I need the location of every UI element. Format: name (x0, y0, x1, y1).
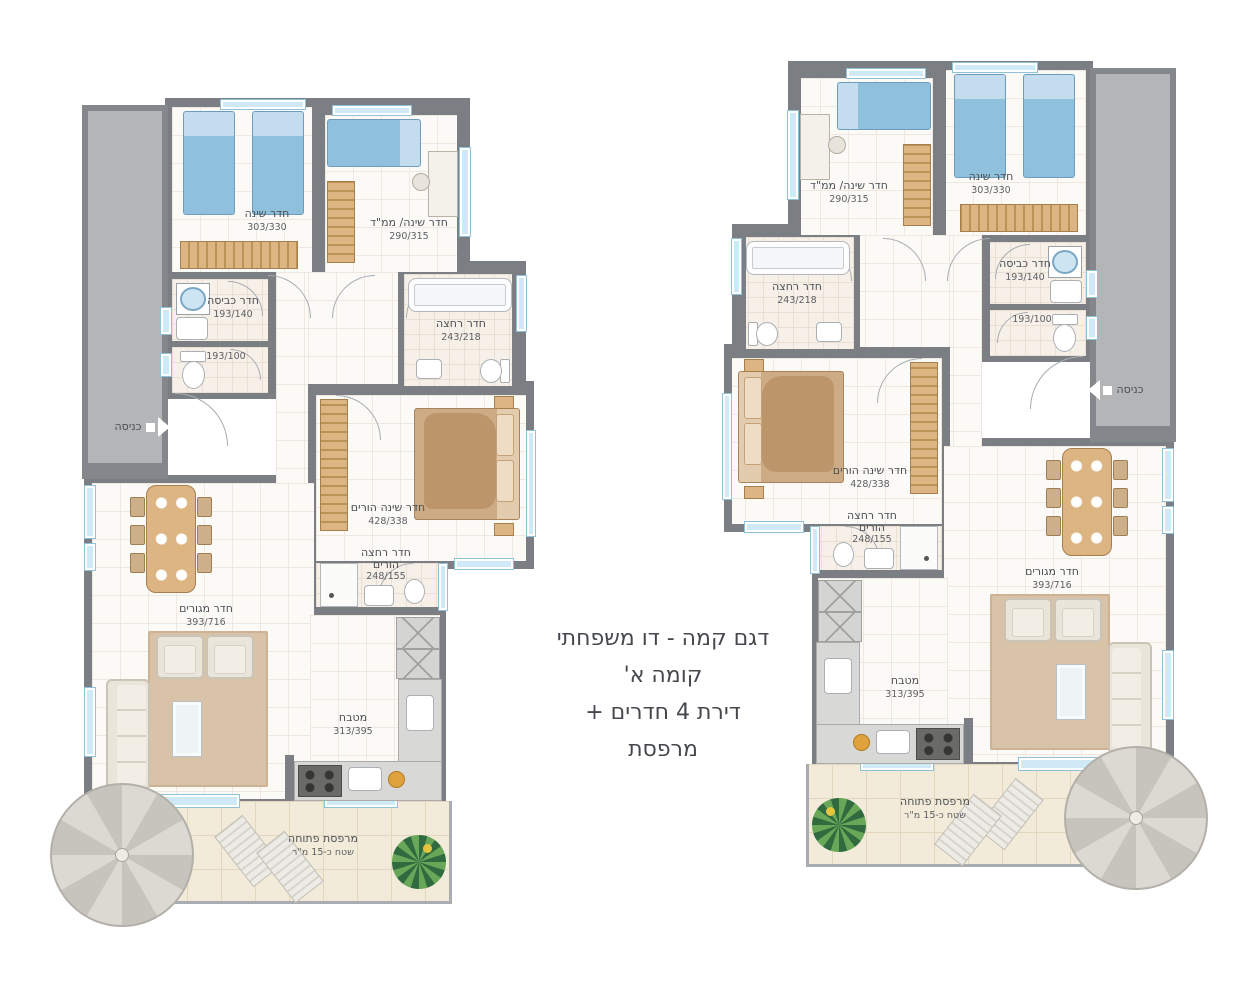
room-parents-bedroom-label: חדר שינה הורים 428/338 (833, 464, 907, 492)
arrow-head (1088, 380, 1100, 400)
single-bed (1023, 74, 1075, 178)
dining-chair (130, 553, 145, 573)
window (810, 526, 820, 574)
single-bed (252, 111, 304, 215)
room-dims: 393/716 (179, 616, 233, 630)
room-dims: 313/395 (885, 688, 924, 702)
stove (916, 728, 960, 760)
room-bedroom-label: חדר שינה 303/330 (969, 170, 1014, 198)
nightstand (494, 523, 514, 536)
room-parents-bathroom-label: חדר רחצה הורים 248/155 (361, 547, 411, 583)
room-name: חדר מגורים (179, 602, 233, 616)
window (731, 238, 742, 295)
wardrobe (910, 362, 938, 494)
room-name: מרפסת פתוחה (900, 795, 970, 809)
nightstand (744, 486, 764, 499)
dryer (176, 317, 208, 340)
single-bed (837, 82, 931, 130)
room-toilet-label: 193/100 (206, 350, 245, 364)
dining-chair (1046, 488, 1061, 508)
pillow (744, 423, 762, 465)
room-dims: 428/338 (833, 478, 907, 492)
armchair (1054, 598, 1102, 642)
common-corridor (1096, 74, 1170, 426)
fruit-bowl (853, 734, 870, 751)
room-dims: 313/395 (333, 725, 372, 739)
window (744, 521, 804, 533)
dining-chair (1113, 460, 1128, 480)
entrance-name: כניסה (1116, 383, 1143, 397)
single-bed (327, 119, 421, 167)
entrance-name: כניסה (114, 420, 141, 434)
sink (864, 548, 894, 569)
wardrobe (180, 241, 298, 269)
kitchen-sink (824, 658, 852, 694)
plant (392, 835, 446, 889)
room-name: חדר שינה (969, 170, 1014, 184)
door-arc (175, 393, 228, 446)
bathtub (408, 278, 512, 312)
room-dims: 193/140 (999, 271, 1051, 285)
kitchen-cabinet (818, 612, 862, 642)
room-name: הורים (847, 522, 897, 534)
door-arc (1030, 356, 1083, 409)
kitchen-sink (348, 767, 382, 791)
washing-machine (176, 283, 210, 315)
desk-chair (828, 136, 846, 154)
dining-chair (130, 525, 145, 545)
bathtub (746, 241, 850, 275)
wardrobe (327, 181, 355, 263)
window (332, 105, 412, 116)
window (1086, 316, 1098, 340)
pillow (496, 460, 514, 502)
room-name: מרפסת פתוחה (288, 832, 358, 846)
coffee-table (1056, 664, 1086, 720)
umbrella (1064, 746, 1208, 890)
room-dims: 393/716 (1025, 579, 1079, 593)
armchair (206, 635, 254, 679)
wardrobe (903, 144, 931, 226)
room-kitchen-label: מטבח 313/395 (885, 674, 924, 702)
window (454, 558, 514, 570)
arrow-head (158, 417, 170, 437)
room-name: חדר שינה/ ממ"ד (810, 179, 888, 193)
sink (416, 359, 442, 379)
wardrobe (320, 399, 348, 531)
window (787, 110, 799, 200)
common-corridor (88, 111, 162, 463)
pillow (744, 377, 762, 419)
window (1162, 448, 1174, 502)
room-dims: 303/330 (245, 221, 290, 235)
room-dims: 243/218 (772, 294, 822, 308)
single-bed (954, 74, 1006, 178)
room-name: חדר שינה הורים (833, 464, 907, 478)
plant (812, 798, 866, 852)
floor-plan-right: חדר שינה 303/330 חדר שינה/ ממ"ד 290/315 … (720, 58, 1178, 870)
room-dims: 193/140 (207, 308, 259, 322)
room-kitchen-label: מטבח 313/395 (333, 711, 372, 739)
shower (320, 563, 358, 607)
window (1086, 270, 1098, 298)
wall-stub (964, 718, 973, 762)
window (722, 393, 732, 500)
balcony-label: מרפסת פתוחה שטח כ-15 מ"ר (900, 795, 970, 823)
window (516, 275, 527, 332)
room-dims: 248/155 (847, 534, 897, 546)
entrance-arrow-icon (146, 417, 170, 437)
armchair (156, 635, 204, 679)
window (526, 430, 536, 537)
room-dims: 193/100 (206, 350, 245, 364)
room-dims: 193/100 (1012, 313, 1051, 327)
room-bedroom-label: חדר שינה 303/330 (245, 207, 290, 235)
window (459, 147, 471, 237)
pillow (496, 414, 514, 456)
stove (298, 765, 342, 797)
toilet-bowl (480, 359, 502, 383)
wall-stub (285, 755, 294, 799)
balcony-label: מרפסת פתוחה שטח כ-15 מ"ר (288, 832, 358, 860)
kitchen-sink (876, 730, 910, 754)
dining-chair (197, 553, 212, 573)
room-dims: 428/338 (351, 515, 425, 529)
room-name: מטבח (333, 711, 372, 725)
dining-chair (1113, 488, 1128, 508)
arrow-shaft (1103, 386, 1112, 395)
toilet-bowl (1053, 324, 1076, 352)
blanket (762, 376, 834, 472)
dining-chair (130, 497, 145, 517)
entrance-label: כניסה (114, 420, 141, 434)
dining-table (1062, 448, 1112, 556)
room-name: חדר שינה (245, 207, 290, 221)
window (952, 62, 1038, 73)
washing-machine (1048, 246, 1082, 278)
window (160, 353, 172, 377)
coffee-table (172, 701, 202, 757)
dining-chair (197, 497, 212, 517)
wardrobe (960, 204, 1078, 232)
arrow-shaft (146, 423, 155, 432)
toilet-bowl (182, 361, 205, 389)
armchair (1004, 598, 1052, 642)
entrance-arrow-icon (1088, 380, 1112, 400)
room-name: חדר רחצה (772, 280, 822, 294)
window (84, 485, 96, 539)
room-living-label: חדר מגורים 393/716 (1025, 565, 1079, 593)
window (84, 543, 96, 571)
dining-chair (1046, 460, 1061, 480)
kitchen-cabinet (396, 617, 440, 649)
umbrella (50, 783, 194, 927)
room-name: חדר שינה הורים (351, 501, 425, 515)
room-bedroom-mamad-label: חדר שינה/ ממ"ד 290/315 (810, 179, 888, 207)
room-area: שטח כ-15 מ"ר (900, 809, 970, 823)
sofa (106, 679, 150, 791)
room-name: חדר כביסה (207, 294, 259, 308)
toilet-bowl (756, 322, 778, 346)
desk (428, 151, 458, 217)
kitchen-sink (406, 695, 434, 731)
window (1162, 506, 1174, 534)
window (1162, 650, 1174, 720)
nightstand (494, 396, 514, 409)
room-name: חדר מגורים (1025, 565, 1079, 579)
room-name: חדר רחצה (436, 317, 486, 331)
room-bathroom-label: חדר רחצה 243/218 (772, 280, 822, 308)
sink (364, 585, 394, 606)
window (84, 687, 96, 757)
room-bathroom-label: חדר רחצה 243/218 (436, 317, 486, 345)
sink (816, 322, 842, 342)
dryer (1050, 280, 1082, 303)
desk (800, 114, 830, 180)
room-name: חדר שינה/ ממ"ד (370, 216, 448, 230)
window (220, 99, 306, 110)
dining-chair (1113, 516, 1128, 536)
room-dims: 248/155 (361, 571, 411, 583)
entrance-label: כניסה (1116, 383, 1143, 397)
room-toilet-label: 193/100 (1012, 313, 1051, 327)
floor-plan-page: חדר שינה 303/330 חדר שינה/ ממ"ד 290/315 … (0, 0, 1250, 986)
sofa (1108, 642, 1152, 754)
room-dims: 290/315 (370, 230, 448, 244)
room-dims: 290/315 (810, 193, 888, 207)
nightstand (744, 359, 764, 372)
single-bed (183, 111, 235, 215)
desk-chair (412, 173, 430, 191)
dining-chair (1046, 516, 1061, 536)
fruit-bowl (388, 771, 405, 788)
room-name: הורים (361, 559, 411, 571)
dining-chair (197, 525, 212, 545)
room-dims: 303/330 (969, 184, 1014, 198)
room-parents-bedroom-label: חדר שינה הורים 428/338 (351, 501, 425, 529)
window (438, 563, 448, 611)
kitchen-cabinet (396, 649, 440, 679)
room-dims: 243/218 (436, 331, 486, 345)
window (160, 307, 172, 335)
room-laundry-label: חדר כביסה 193/140 (999, 257, 1051, 285)
shower (900, 526, 938, 570)
room-area: שטח כ-15 מ"ר (288, 846, 358, 860)
room-name: מטבח (885, 674, 924, 688)
dining-table (146, 485, 196, 593)
blanket (424, 413, 496, 509)
room-bedroom-mamad-label: חדר שינה/ ממ"ד 290/315 (370, 216, 448, 244)
room-laundry-label: חדר כביסה 193/140 (207, 294, 259, 322)
floor-plan-left: חדר שינה 303/330 חדר שינה/ ממ"ד 290/315 … (80, 95, 538, 907)
room-name: חדר כביסה (999, 257, 1051, 271)
room-parents-bathroom-label: חדר רחצה הורים 248/155 (847, 510, 897, 546)
kitchen-cabinet (818, 580, 862, 612)
room-living-label: חדר מגורים 393/716 (179, 602, 233, 630)
window (846, 68, 926, 79)
